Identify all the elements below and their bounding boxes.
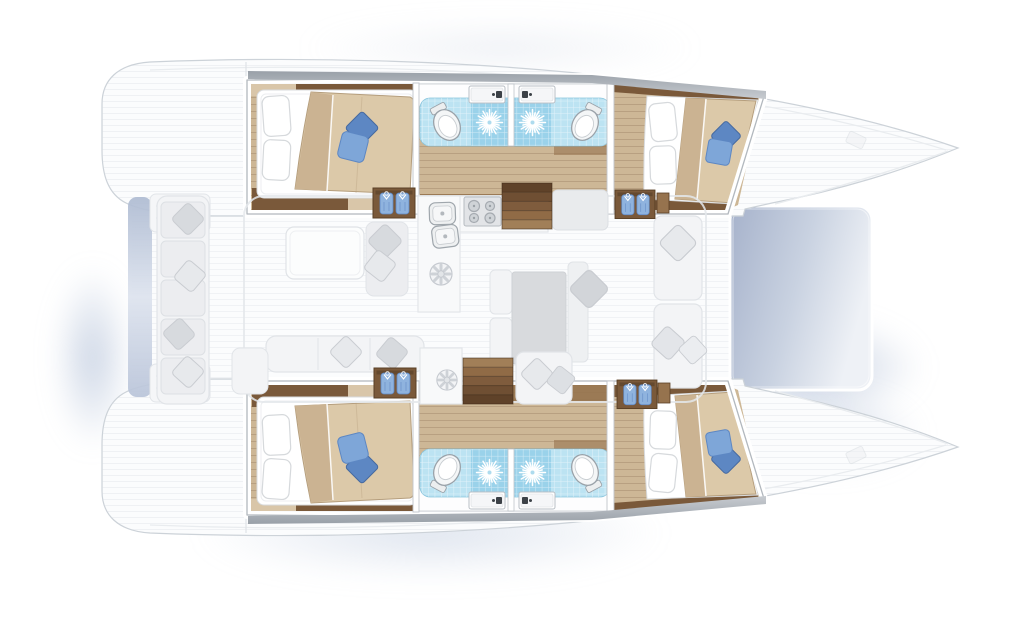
galley-sink-icon <box>431 224 459 249</box>
vent-fan-icon <box>437 370 457 390</box>
wardrobe-port-forward <box>615 190 655 219</box>
dining-table <box>512 272 566 364</box>
dining-seat-console <box>552 190 608 230</box>
vent-fan-icon <box>430 263 452 285</box>
galley-sink-icon <box>429 202 456 225</box>
stairs-starboard <box>463 358 513 404</box>
dining-bench <box>490 318 512 362</box>
galley-low-cabinet <box>420 348 462 404</box>
shelf-port-forward <box>657 193 669 213</box>
stove-burners-icon <box>464 197 501 226</box>
wardrobe-starboard-aft <box>374 368 416 398</box>
dining-sofa-aft <box>516 352 576 404</box>
wardrobe-port-aft <box>373 188 415 218</box>
stairs-port <box>502 183 552 229</box>
transom-platform <box>128 197 152 397</box>
dining-bench <box>490 270 512 314</box>
cockpit-side-seat <box>363 222 408 296</box>
shelf-starboard-forward <box>658 383 670 403</box>
catamaran-floor-plan <box>0 0 1024 625</box>
wardrobe-starboard-forward <box>617 380 657 409</box>
trampoline <box>730 206 872 390</box>
cockpit-table <box>286 227 364 279</box>
